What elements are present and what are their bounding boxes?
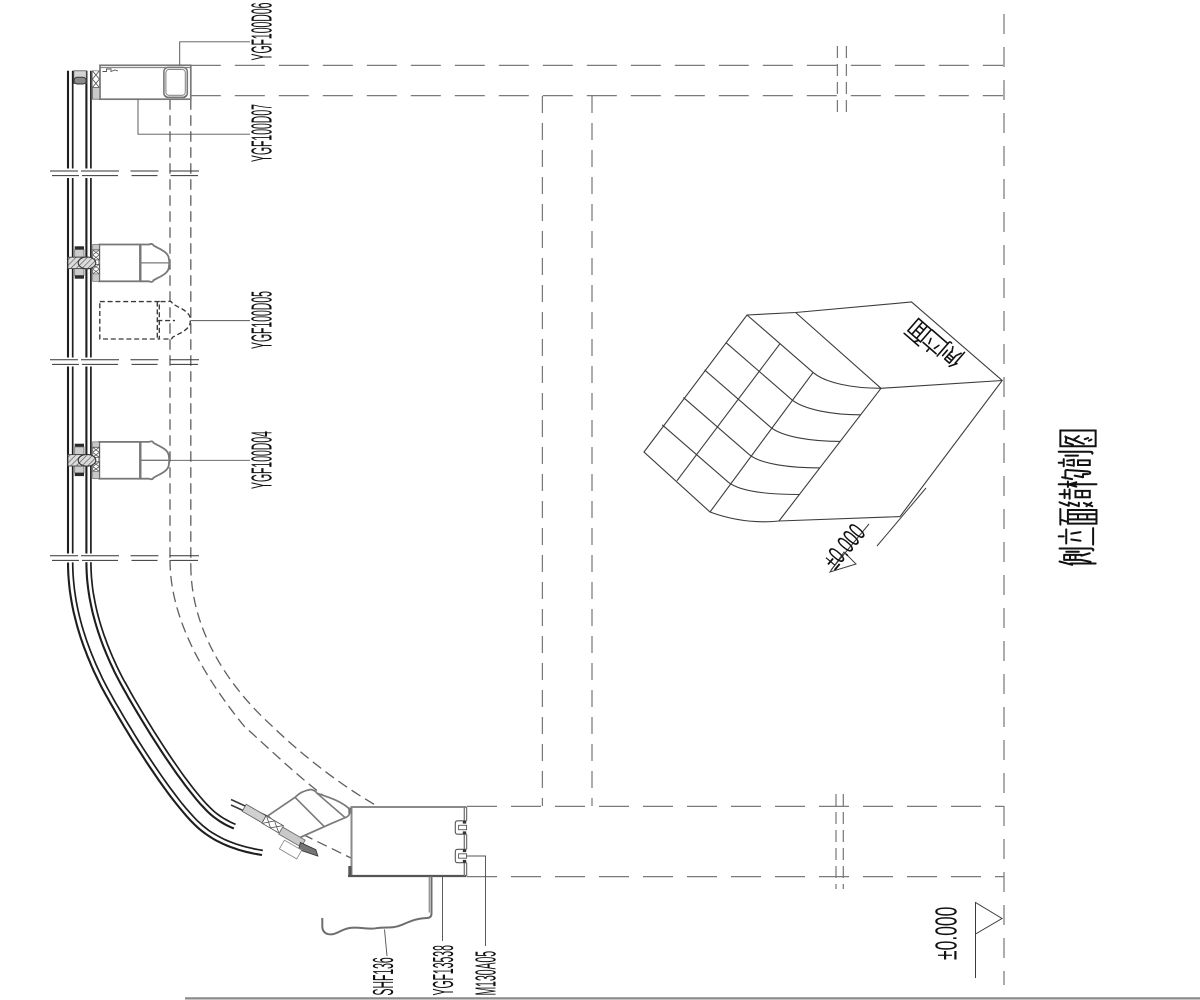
- svg-text:YGF100D06: YGF100D06: [246, 3, 278, 61]
- svg-text:SHF136: SHF136: [368, 957, 400, 995]
- svg-text:YGF13538: YGF13538: [428, 945, 460, 995]
- svg-text:M130A05: M130A05: [470, 951, 502, 996]
- svg-text:YGF100D04: YGF100D04: [246, 431, 278, 489]
- svg-text:±0.000: ±0.000: [930, 907, 964, 960]
- svg-text:YGF100D05: YGF100D05: [246, 291, 278, 349]
- svg-text:YGF100D07: YGF100D07: [246, 104, 278, 162]
